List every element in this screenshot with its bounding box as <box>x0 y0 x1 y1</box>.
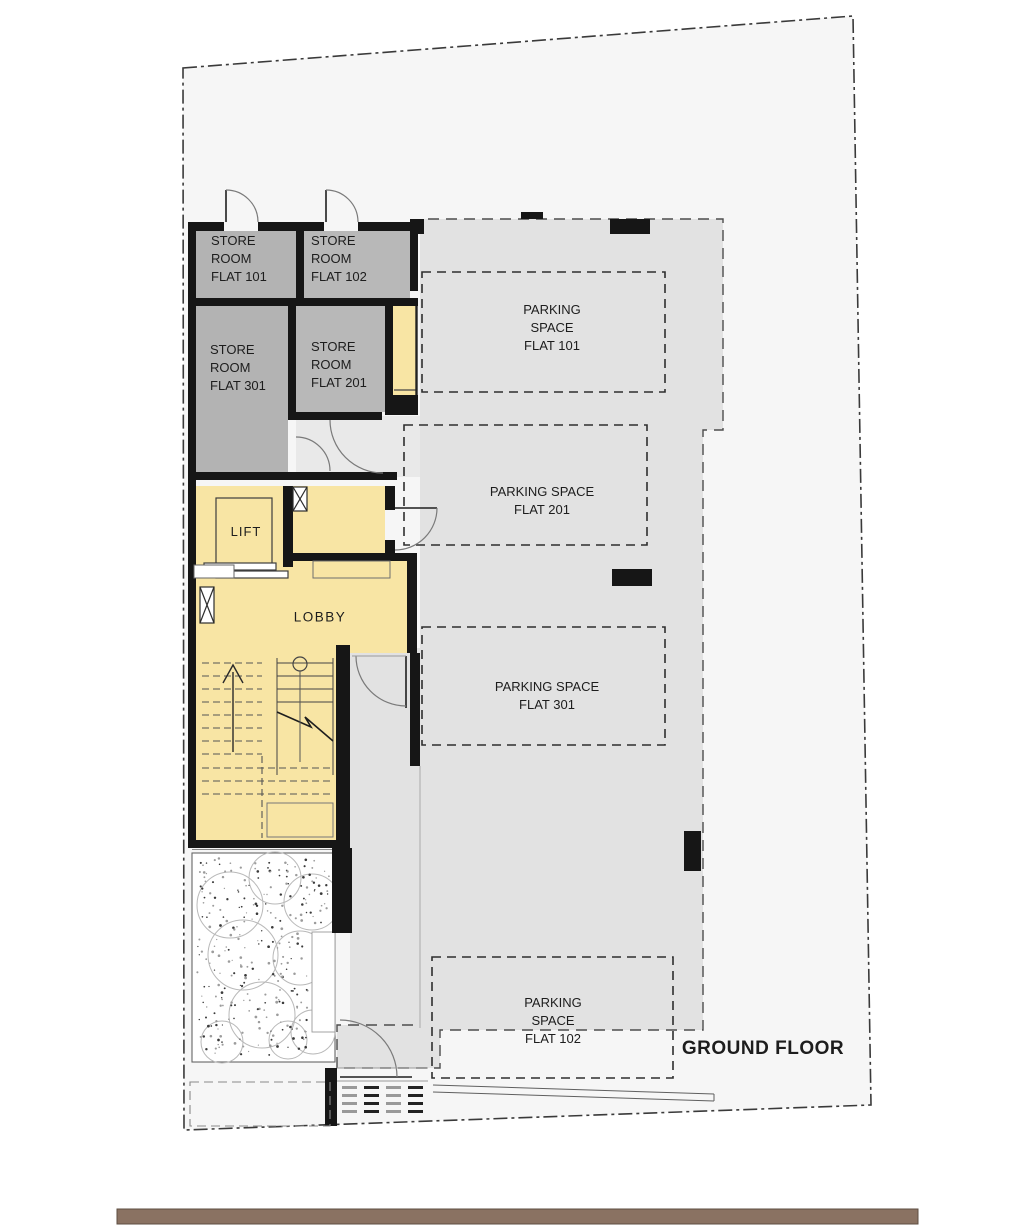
hallway-floor <box>296 416 420 477</box>
footer-bar <box>117 1209 918 1224</box>
column-mid <box>612 569 652 586</box>
store-102-label: STORE ROOM FLAT 102 <box>311 232 367 286</box>
floor-plan-drawing <box>0 0 1017 1231</box>
store-201-label: STORE ROOM FLAT 201 <box>311 338 367 392</box>
wall-tick <box>521 212 543 219</box>
parking-101-label: PARKING SPACE FLAT 101 <box>523 301 581 355</box>
parking-301-label: PARKING SPACE FLAT 301 <box>495 678 599 714</box>
lobby-label: LOBBY <box>294 609 347 628</box>
parking-201-label: PARKING SPACE FLAT 201 <box>490 483 594 519</box>
parking-102-label: PARKING SPACE FLAT 102 <box>524 994 582 1048</box>
entry-corridor <box>350 648 420 1030</box>
column-east <box>684 831 701 871</box>
wall-niche <box>194 565 234 578</box>
store-101-label: STORE ROOM FLAT 101 <box>211 232 267 286</box>
garden <box>192 850 340 1064</box>
page-title: GROUND FLOOR <box>682 1036 844 1062</box>
shaft-box-left <box>200 587 214 623</box>
shaft-box-upper <box>293 487 307 511</box>
floor-plan-page: STORE ROOM FLAT 101 STORE ROOM FLAT 102 … <box>0 0 1017 1231</box>
column-north <box>610 219 650 234</box>
lift-label: LIFT <box>231 523 262 541</box>
yellow-strip <box>393 306 417 398</box>
garden-path <box>312 932 335 1032</box>
store-301-label: STORE ROOM FLAT 301 <box>210 341 266 395</box>
